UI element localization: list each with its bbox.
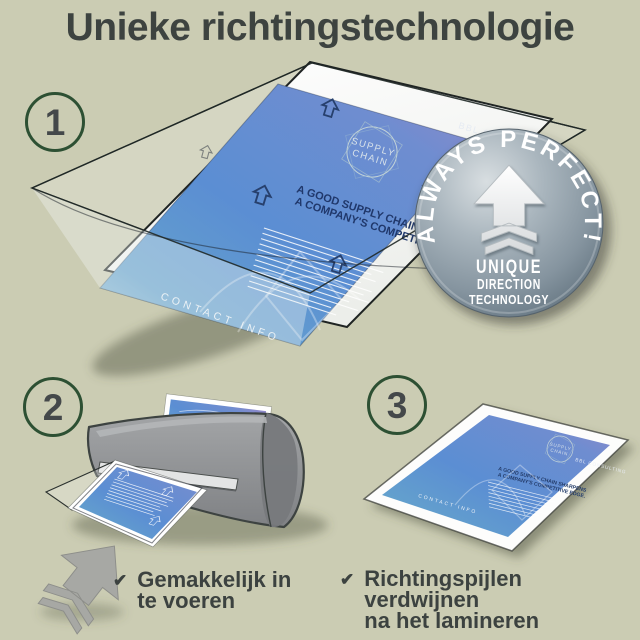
caption-easy-feed: ✔ Gemakkelijk in te voeren <box>113 569 291 611</box>
caption-easy-feed-line2: te voeren <box>137 590 291 611</box>
illustration-canvas: SUPPLY CHAIN BBL CONSULTING A GOOD SUPPL… <box>0 0 640 640</box>
badge-line1: UNIQUE <box>476 257 542 278</box>
caption-easy-feed-line1: Gemakkelijk in <box>137 569 291 590</box>
badge-line2: DIRECTION <box>477 277 541 293</box>
check-icon: ✔ <box>113 570 127 591</box>
step-number-3: 3 <box>367 375 427 435</box>
check-icon: ✔ <box>340 569 354 590</box>
page-title: Unieke richtingstechnologie <box>0 6 640 50</box>
caption-arrows-disappear-line2: na het lamineren <box>364 610 640 631</box>
caption-arrows-disappear: ✔ Richtingspijlen verdwijnen na het lami… <box>340 568 640 631</box>
product-infographic: SUPPLY CHAIN BBL CONSULTING A GOOD SUPPL… <box>0 0 640 640</box>
step-number-1-label: 1 <box>45 104 66 141</box>
step-number-3-label: 3 <box>387 387 408 424</box>
badge-line3: TECHNOLOGY <box>469 293 549 307</box>
step-number-2: 2 <box>23 377 83 437</box>
step-number-2-label: 2 <box>43 389 64 426</box>
caption-arrows-disappear-line1: Richtingspijlen verdwijnen <box>364 568 640 610</box>
step-number-1: 1 <box>25 92 85 152</box>
